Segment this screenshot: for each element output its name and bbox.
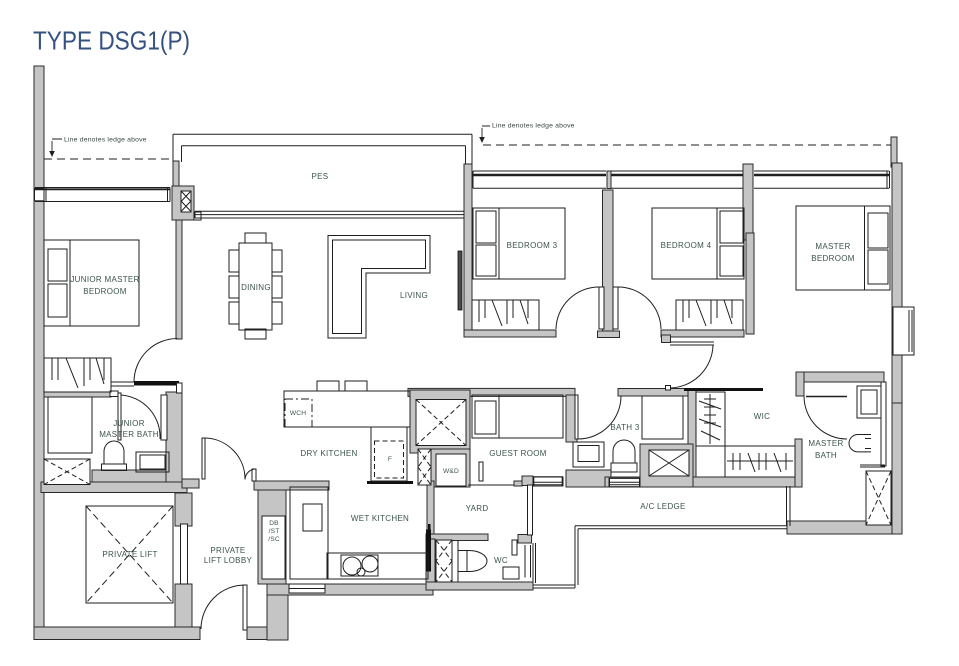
svg-text:GUEST ROOM: GUEST ROOM xyxy=(489,449,547,458)
svg-text:JUNIOR: JUNIOR xyxy=(113,419,145,428)
svg-text:Line denotes ledge above: Line denotes ledge above xyxy=(64,137,147,144)
svg-text:JUNIOR MASTER: JUNIOR MASTER xyxy=(70,275,139,284)
svg-text:DRY KITCHEN: DRY KITCHEN xyxy=(300,449,357,458)
svg-text:BATH 3: BATH 3 xyxy=(610,423,639,432)
svg-text:BEDROOM: BEDROOM xyxy=(83,287,126,296)
svg-text:DB: DB xyxy=(269,520,279,527)
svg-text:MASTER BATH: MASTER BATH xyxy=(99,430,159,439)
svg-text:PRIVATE: PRIVATE xyxy=(210,546,245,555)
svg-text:MASTER: MASTER xyxy=(815,242,850,251)
svg-text:/ST: /ST xyxy=(269,528,280,535)
svg-text:BATH: BATH xyxy=(815,451,837,460)
svg-text:BEDROOM 3: BEDROOM 3 xyxy=(507,241,558,250)
svg-text:DINING: DINING xyxy=(241,283,271,292)
svg-text:WIC: WIC xyxy=(754,412,770,421)
svg-text:LIVING: LIVING xyxy=(400,291,428,300)
svg-text:PES: PES xyxy=(312,172,329,181)
svg-text:PRIVATE LIFT: PRIVATE LIFT xyxy=(102,550,157,559)
svg-text:F: F xyxy=(388,456,392,463)
svg-text:BEDROOM 4: BEDROOM 4 xyxy=(661,241,712,250)
svg-text:WCH: WCH xyxy=(290,410,306,417)
svg-text:/SC: /SC xyxy=(268,536,280,543)
svg-text:WC: WC xyxy=(494,556,508,565)
svg-text:WET KITCHEN: WET KITCHEN xyxy=(351,514,409,523)
svg-text:A/C LEDGE: A/C LEDGE xyxy=(640,502,685,511)
svg-text:YARD: YARD xyxy=(466,504,489,513)
svg-text:Line denotes ledge above: Line denotes ledge above xyxy=(492,123,575,130)
svg-text:BEDROOM: BEDROOM xyxy=(811,254,854,263)
svg-text:W&D: W&D xyxy=(443,468,459,475)
svg-text:TYPE DSG1(P): TYPE DSG1(P) xyxy=(33,27,190,56)
svg-text:MASTER: MASTER xyxy=(808,439,843,448)
svg-text:LIFT LOBBY: LIFT LOBBY xyxy=(204,556,253,565)
